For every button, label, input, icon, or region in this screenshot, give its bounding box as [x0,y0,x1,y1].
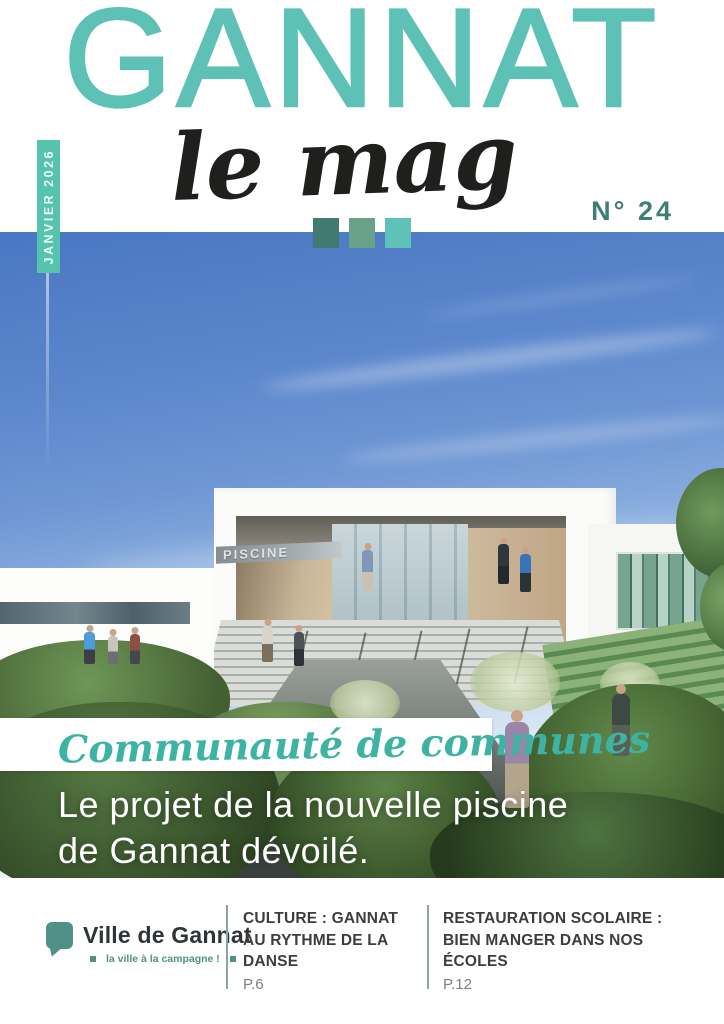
person-silhouette [362,550,373,590]
map-pin-icon [46,922,73,949]
accent-squares [313,218,411,248]
teaser-title: CULTURE : GANNAT AU RYTHME DE LA DANSE [243,908,415,973]
building-sign-text: PISCINE [223,545,289,563]
headline-line1: Le projet de la nouvelle piscine [58,782,568,828]
footer-divider [226,905,228,989]
contrail [46,272,49,472]
person-silhouette [262,626,273,662]
person-silhouette [108,636,118,664]
person-silhouette [84,632,95,664]
cover-photo: PISCINE Co [0,232,724,878]
city-logo: Ville de Gannat la ville à la campagne ! [46,922,252,965]
kicker-banner: Communauté de communes [0,718,492,771]
magazine-cover: GANNAT le mag N° 24 JANVIER 2026 [0,0,724,1024]
footer-bar: Ville de Gannat la ville à la campagne !… [0,878,724,1024]
headline-line2: de Gannat dévoilé. [58,828,568,874]
accent-square-mid [349,218,375,248]
person-silhouette [498,544,509,584]
tagline-square-icon [90,956,96,962]
ornamental-grass [470,652,560,712]
accent-square-light [385,218,411,248]
tagline-text: la ville à la campagne ! [106,953,220,965]
person-silhouette [294,632,304,666]
person-silhouette [520,554,531,592]
cover-headline: Le projet de la nouvelle piscine de Gann… [58,782,568,874]
ribbon-window [0,602,190,624]
teaser-page-ref: P.12 [443,976,683,993]
teaser-restauration: RESTAURATION SCOLAIRE : BIEN MANGER DANS… [443,908,683,993]
teaser-page-ref: P.6 [243,976,415,993]
teaser-title: RESTAURATION SCOLAIRE : BIEN MANGER DANS… [443,908,683,973]
footer-divider [427,905,429,989]
accent-square-dark [313,218,339,248]
teaser-culture: CULTURE : GANNAT AU RYTHME DE LA DANSE P… [243,908,415,993]
person-silhouette [130,634,140,664]
tagline-square-icon [230,956,236,962]
